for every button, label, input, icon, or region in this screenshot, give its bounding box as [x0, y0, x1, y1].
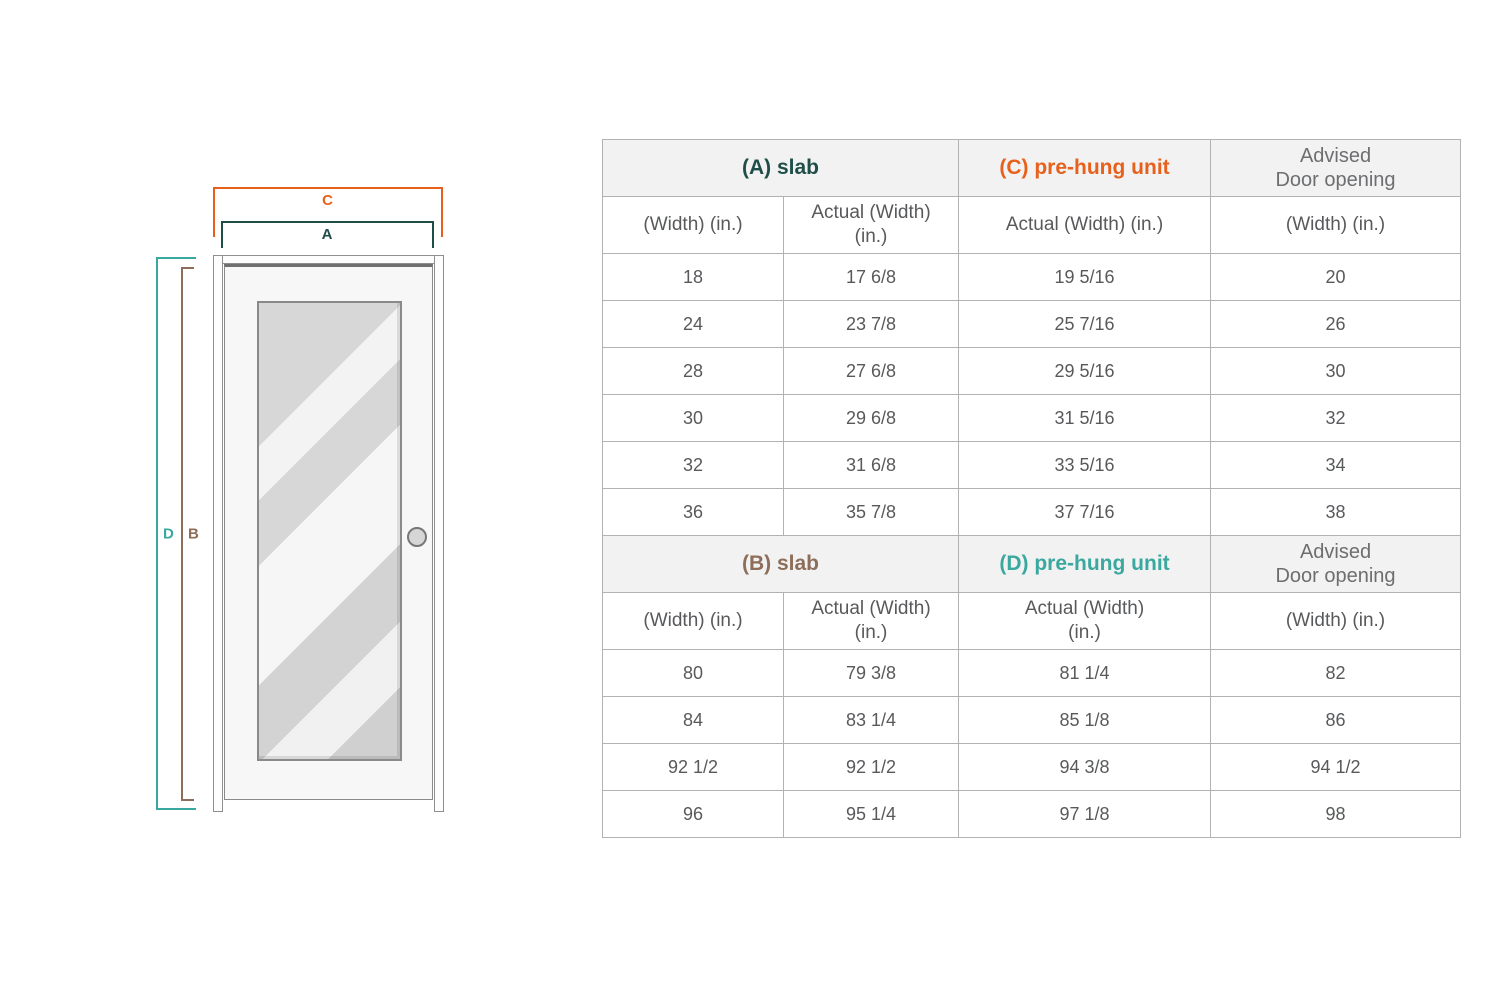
group-header-cell: (D) pre-hung unit	[959, 536, 1211, 593]
group-header-row: (B) slab(D) pre-hung unitAdvised Door op…	[603, 536, 1461, 593]
group-header-cell: (C) pre-hung unit	[959, 140, 1211, 197]
column-header-row: (Width) (in.)Actual (Width) (in.)Actual …	[603, 197, 1461, 254]
column-header-cell: Actual (Width) (in.)	[959, 197, 1211, 254]
size-value-cell: 32	[1211, 395, 1461, 442]
size-value-cell: 18	[603, 254, 784, 301]
column-header-cell: (Width) (in.)	[603, 593, 784, 650]
door-frame-right	[434, 255, 444, 812]
column-header-cell: Actual (Width) (in.)	[784, 197, 959, 254]
size-value-cell: 25 7/16	[959, 301, 1211, 348]
size-value-cell: 83 1/4	[784, 697, 959, 744]
column-header-row: (Width) (in.)Actual (Width) (in.)Actual …	[603, 593, 1461, 650]
size-value-cell: 30	[603, 395, 784, 442]
door-glass-panel	[257, 301, 402, 761]
door-size-chart-page: C A D B (A) slab(C) pre-hung unitAdvised…	[0, 0, 1501, 1000]
dimension-label-c: C	[215, 192, 441, 209]
size-value-cell: 30	[1211, 348, 1461, 395]
size-value-cell: 26	[1211, 301, 1461, 348]
size-value-cell: 29 5/16	[959, 348, 1211, 395]
size-value-cell: 31 5/16	[959, 395, 1211, 442]
size-value-cell: 20	[1211, 254, 1461, 301]
size-value-cell: 34	[1211, 442, 1461, 489]
table-row: 3635 7/837 7/1638	[603, 489, 1461, 536]
size-value-cell: 35 7/8	[784, 489, 959, 536]
size-value-cell: 97 1/8	[959, 791, 1211, 838]
table-row: 1817 6/819 5/1620	[603, 254, 1461, 301]
size-value-cell: 92 1/2	[603, 744, 784, 791]
size-value-cell: 27 6/8	[784, 348, 959, 395]
size-value-cell: 82	[1211, 650, 1461, 697]
table-row: 2423 7/825 7/1626	[603, 301, 1461, 348]
size-value-cell: 37 7/16	[959, 489, 1211, 536]
table-row: 92 1/292 1/294 3/894 1/2	[603, 744, 1461, 791]
group-header-cell: Advised Door opening	[1211, 140, 1461, 197]
table-row: 9695 1/497 1/898	[603, 791, 1461, 838]
size-value-cell: 96	[603, 791, 784, 838]
size-value-cell: 86	[1211, 697, 1461, 744]
size-value-cell: 80	[603, 650, 784, 697]
column-header-cell: (Width) (in.)	[1211, 197, 1461, 254]
size-value-cell: 17 6/8	[784, 254, 959, 301]
size-value-cell: 32	[603, 442, 784, 489]
column-header-cell: (Width) (in.)	[603, 197, 784, 254]
dimension-bracket-a: A	[221, 221, 434, 248]
size-value-cell: 85 1/8	[959, 697, 1211, 744]
size-value-cell: 36	[603, 489, 784, 536]
dimension-label-d: D	[161, 524, 176, 543]
size-value-cell: 33 5/16	[959, 442, 1211, 489]
size-value-cell: 29 6/8	[784, 395, 959, 442]
size-value-cell: 81 1/4	[959, 650, 1211, 697]
door-knob	[407, 527, 427, 547]
size-value-cell: 23 7/8	[784, 301, 959, 348]
size-table-container: (A) slab(C) pre-hung unitAdvised Door op…	[602, 139, 1461, 838]
door-frame-top	[213, 255, 444, 264]
size-value-cell: 19 5/16	[959, 254, 1211, 301]
group-header-row: (A) slab(C) pre-hung unitAdvised Door op…	[603, 140, 1461, 197]
size-value-cell: 38	[1211, 489, 1461, 536]
door-slab	[224, 264, 433, 800]
door-size-table: (A) slab(C) pre-hung unitAdvised Door op…	[602, 139, 1461, 838]
column-header-cell: Actual (Width) (in.)	[959, 593, 1211, 650]
size-value-cell: 94 3/8	[959, 744, 1211, 791]
table-row: 8483 1/485 1/886	[603, 697, 1461, 744]
size-value-cell: 79 3/8	[784, 650, 959, 697]
group-header-cell: Advised Door opening	[1211, 536, 1461, 593]
size-value-cell: 95 1/4	[784, 791, 959, 838]
column-header-cell: (Width) (in.)	[1211, 593, 1461, 650]
group-header-cell: (B) slab	[603, 536, 959, 593]
column-header-cell: Actual (Width) (in.)	[784, 593, 959, 650]
dimension-bracket-b: B	[181, 267, 194, 801]
size-value-cell: 94 1/2	[1211, 744, 1461, 791]
size-value-cell: 98	[1211, 791, 1461, 838]
size-value-cell: 24	[603, 301, 784, 348]
dimension-label-a: A	[223, 226, 432, 243]
table-row: 3029 6/831 5/1632	[603, 395, 1461, 442]
table-row: 2827 6/829 5/1630	[603, 348, 1461, 395]
size-value-cell: 92 1/2	[784, 744, 959, 791]
size-value-cell: 84	[603, 697, 784, 744]
size-value-cell: 28	[603, 348, 784, 395]
group-header-cell: (A) slab	[603, 140, 959, 197]
table-row: 3231 6/833 5/1634	[603, 442, 1461, 489]
size-value-cell: 31 6/8	[784, 442, 959, 489]
door-frame-left	[213, 255, 223, 812]
table-row: 8079 3/881 1/482	[603, 650, 1461, 697]
dimension-label-b: B	[186, 525, 201, 544]
